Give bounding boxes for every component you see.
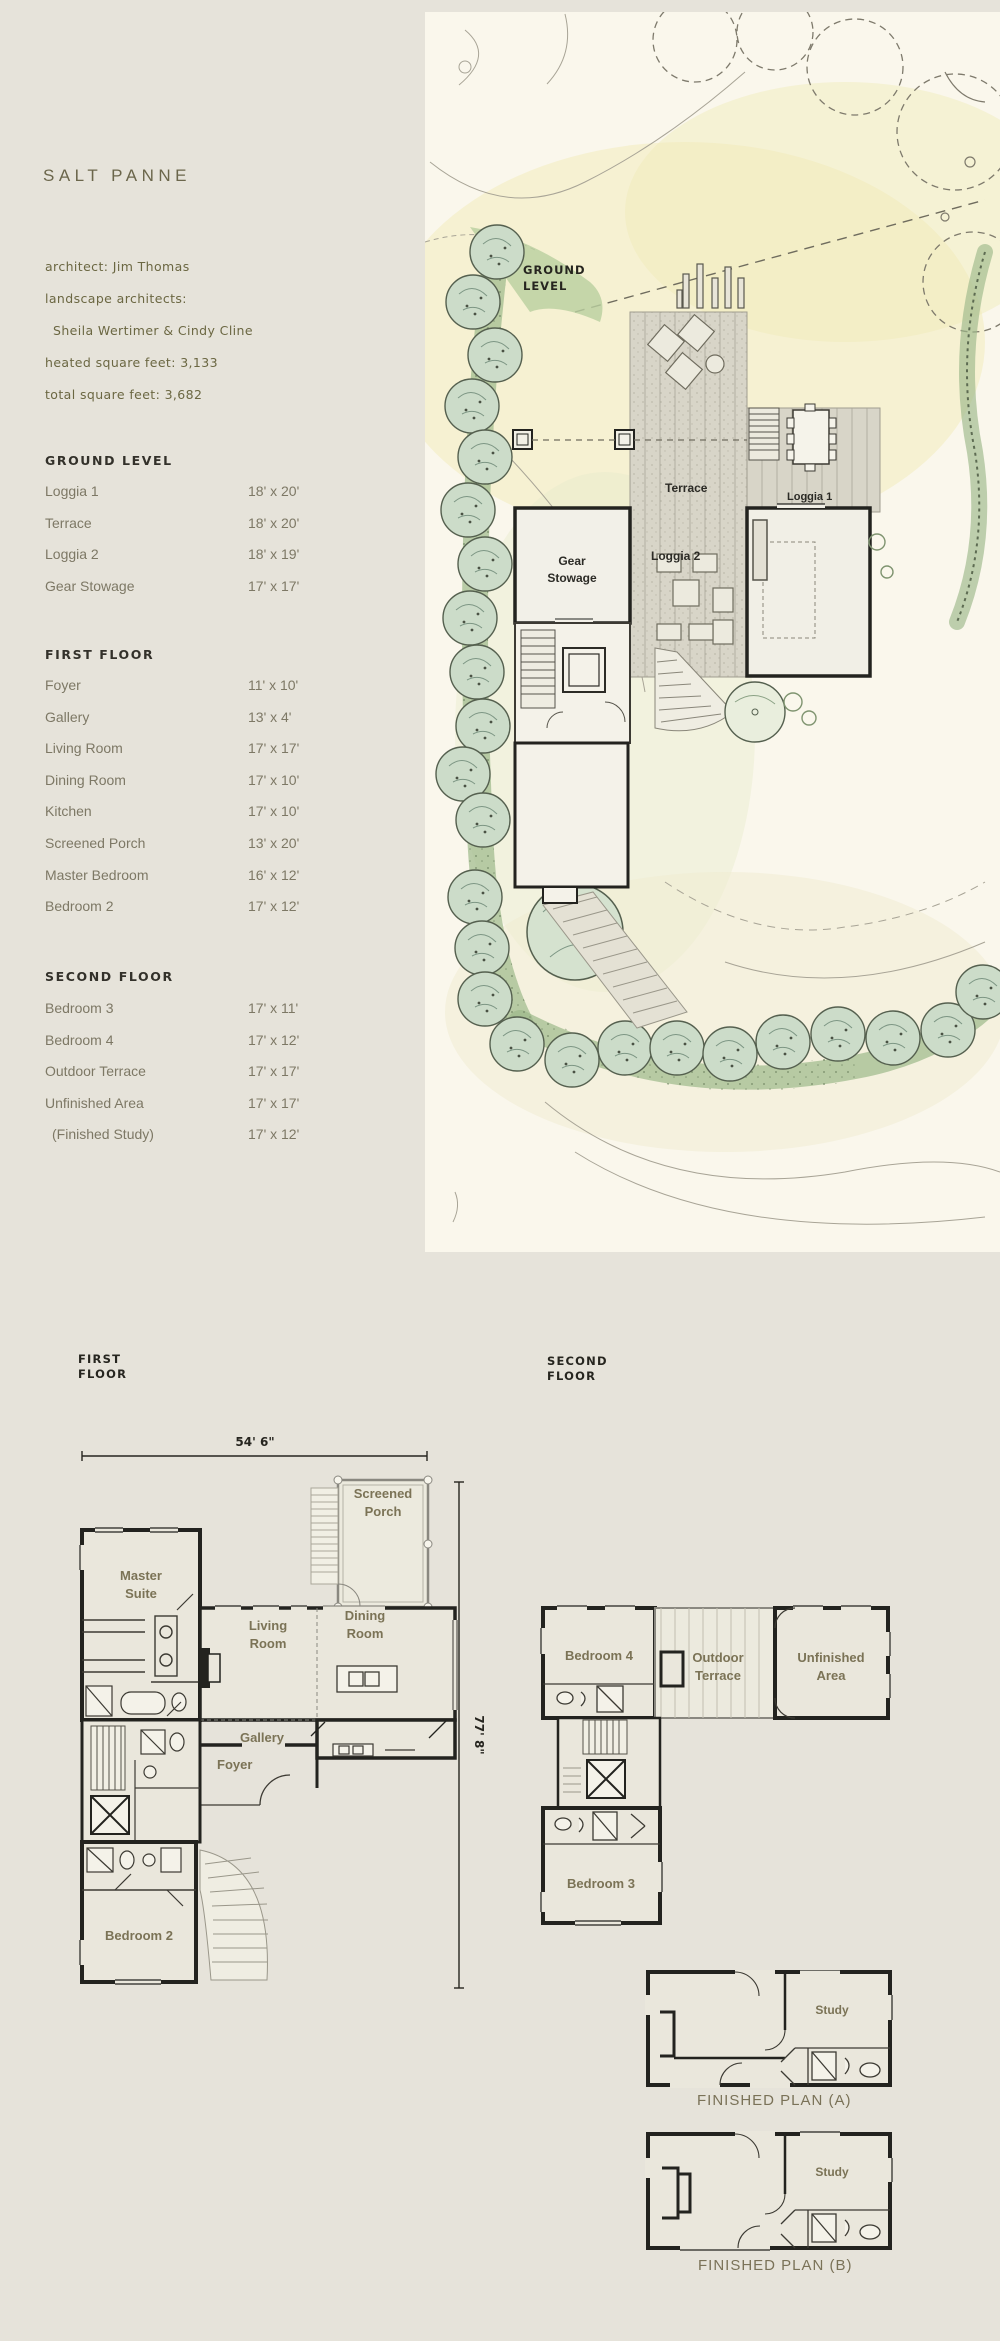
- room-dim: 17' x 10': [248, 803, 299, 819]
- room-dim: 18' x 19': [248, 546, 299, 562]
- room-name: Bedroom 4: [45, 1032, 113, 1048]
- label-gallery: Gallery: [240, 1730, 285, 1745]
- heated-sqft-line: heated square feet: 3,133: [45, 355, 218, 370]
- table-header-second-floor: SECOND FLOOR: [45, 969, 174, 984]
- label-unfinished-1: Unfinished: [797, 1650, 864, 1665]
- room-dim: 17' x 17': [248, 1063, 299, 1079]
- room-dim: 17' x 12': [248, 1126, 299, 1142]
- room-name: Living Room: [45, 740, 123, 756]
- landscape-architects-line: landscape architects:: [45, 291, 187, 306]
- label-screened-porch-2: Porch: [365, 1504, 402, 1519]
- room-name: Dining Room: [45, 772, 126, 788]
- room-name: Outdoor Terrace: [45, 1063, 146, 1079]
- total-sqft-line: total square feet: 3,682: [45, 387, 202, 402]
- site-gear-label-2: Stowage: [547, 571, 597, 585]
- room-name: Master Bedroom: [45, 867, 148, 883]
- first-floor-height-dim: 77' 8": [472, 1715, 485, 1754]
- room-name: Bedroom 2: [45, 898, 113, 914]
- site-loggia2-label: Loggia 2: [651, 549, 701, 563]
- label-screened-porch-1: Screened: [354, 1486, 413, 1501]
- room-name: Unfinished Area: [45, 1095, 144, 1111]
- site-plan-illustration: GROUND LEVEL Terrace Loggia 1 Loggia 2 G…: [425, 12, 1000, 1252]
- room-dim: 17' x 17': [248, 578, 299, 594]
- label-bedroom2: Bedroom 2: [105, 1928, 173, 1943]
- room-dim: 17' x 17': [248, 1095, 299, 1111]
- room-dim: 18' x 20': [248, 483, 299, 499]
- floor-plan-sheet: SALT PANNE architect: Jim Thomas landsca…: [0, 0, 1000, 2341]
- table-header-first-floor: FIRST FLOOR: [45, 647, 154, 662]
- site-loggia1-label: Loggia 1: [787, 491, 832, 503]
- finished-plan-b-caption: FINISHED PLAN (B): [698, 2257, 853, 2274]
- room-dim: 13' x 4': [248, 709, 291, 725]
- label-dining-1: Dining: [345, 1608, 385, 1623]
- room-name: Gear Stowage: [45, 578, 135, 594]
- finished-plan-a: Study: [640, 1970, 900, 2095]
- room-dim: 17' x 17': [248, 740, 299, 756]
- first-floor-title: FIRST FLOOR: [78, 1352, 127, 1382]
- room-dim: 17' x 11': [248, 1000, 298, 1016]
- site-ground-label-1: GROUND: [523, 263, 586, 277]
- label-foyer: Foyer: [217, 1757, 252, 1772]
- label-unfinished-2: Area: [817, 1668, 847, 1683]
- label-living-1: Living: [249, 1618, 287, 1633]
- second-floor-plan: Bedroom 4 Outdoor Terrace: [535, 1592, 915, 1937]
- landscape-architects-names: Sheila Wertimer & Cindy Cline: [53, 323, 253, 338]
- room-name: Loggia 2: [45, 546, 99, 562]
- room-dim: 17' x 12': [248, 898, 299, 914]
- finished-plan-a-caption: FINISHED PLAN (A): [697, 2092, 852, 2109]
- first-floor-width-dim: 54' 6": [235, 1435, 274, 1449]
- room-dim: 11' x 10': [248, 677, 298, 693]
- room-dim: 16' x 12': [248, 867, 299, 883]
- first-floor-plan: 54' 6" 77' 8" Screened Porch: [55, 1420, 485, 2020]
- label-outdoor-terrace-1: Outdoor: [692, 1650, 743, 1665]
- site-gear-label-1: Gear: [558, 554, 586, 568]
- label-dining-2: Room: [347, 1626, 384, 1641]
- label-bedroom4: Bedroom 4: [565, 1648, 634, 1663]
- finished-plan-b: Study: [640, 2130, 900, 2260]
- room-dim: 17' x 12': [248, 1032, 299, 1048]
- label-outdoor-terrace-2: Terrace: [695, 1668, 741, 1683]
- label-study-b: Study: [815, 2165, 849, 2179]
- label-master-2: Suite: [125, 1586, 157, 1601]
- room-dim: 17' x 10': [248, 772, 299, 788]
- room-name: Screened Porch: [45, 835, 145, 851]
- architect-line: architect: Jim Thomas: [45, 259, 190, 274]
- room-dim: 18' x 20': [248, 515, 299, 531]
- room-name: Foyer: [45, 677, 81, 693]
- room-dim: 13' x 20': [248, 835, 299, 851]
- room-name: Kitchen: [45, 803, 92, 819]
- table-header-ground-level: GROUND LEVEL: [45, 453, 173, 468]
- room-name: (Finished Study): [52, 1126, 154, 1142]
- label-master-1: Master: [120, 1568, 162, 1583]
- room-name: Gallery: [45, 709, 89, 725]
- second-floor-title: SECOND FLOOR: [547, 1354, 608, 1384]
- room-name: Bedroom 3: [45, 1000, 113, 1016]
- label-study-a: Study: [815, 2003, 849, 2017]
- site-ground-label-2: LEVEL: [523, 279, 567, 293]
- label-bedroom3: Bedroom 3: [567, 1876, 635, 1891]
- room-name: Terrace: [45, 515, 92, 531]
- label-living-2: Room: [250, 1636, 287, 1651]
- page-title: SALT PANNE: [43, 166, 191, 186]
- room-name: Loggia 1: [45, 483, 99, 499]
- site-terrace-label: Terrace: [665, 481, 708, 495]
